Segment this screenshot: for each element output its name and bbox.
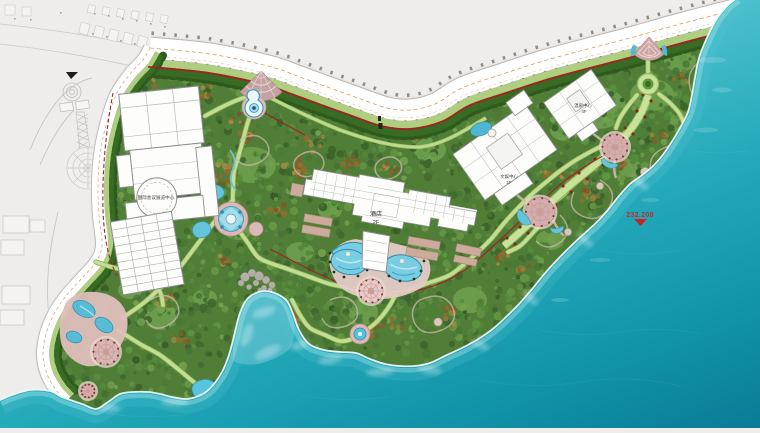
svg-text:国际会议展览中心: 国际会议展览中心 — [138, 194, 175, 201]
svg-text:温泉中心: 温泉中心 — [574, 102, 592, 109]
svg-text:文娱中心: 文娱中心 — [500, 173, 518, 180]
svg-text:2F: 2F — [507, 180, 512, 185]
svg-text:酒店: 酒店 — [370, 210, 382, 218]
svg-text:4F: 4F — [582, 109, 587, 114]
svg-text:2F: 2F — [373, 220, 380, 226]
svg-text:232.200: 232.200 — [626, 212, 653, 219]
